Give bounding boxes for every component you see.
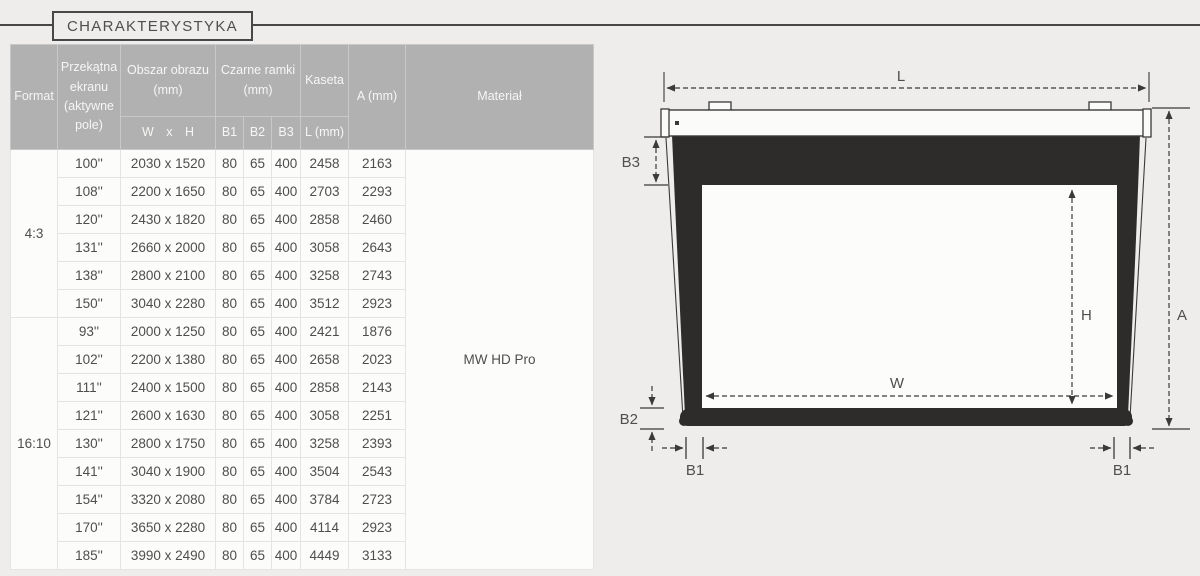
cell-b3: 400 [272,262,301,290]
cell-area: 3040 x 2280 [121,290,216,318]
cell-diagonal: 150'' [58,290,121,318]
cell-b1: 80 [216,402,244,430]
cell-b2: 65 [244,374,272,402]
header-format: Format [11,45,58,150]
cell-a: 2643 [349,234,406,262]
cell-diagonal: 93'' [58,318,121,346]
cell-area: 2030 x 1520 [121,150,216,178]
cell-a: 2723 [349,486,406,514]
header-b3: B3 [272,117,301,150]
cell-diagonal: 131'' [58,234,121,262]
cell-b2: 65 [244,458,272,486]
cell-b3: 400 [272,178,301,206]
format-cell: 4:3 [11,150,58,318]
cell-b1: 80 [216,346,244,374]
cell-b1: 80 [216,542,244,570]
casing-endcap-right [1143,109,1151,137]
page-title: CHARAKTERYSTYKA [67,18,238,35]
material-cell: MW HD Pro [406,150,594,570]
table-row: 4:3100''2030 x 1520806540024582163MW HD … [11,150,594,178]
cell-diagonal: 102'' [58,346,121,374]
cell-diagonal: 100'' [58,150,121,178]
cell-l: 3512 [301,290,349,318]
cell-b1: 80 [216,318,244,346]
header-black-frames: Czarne ramki (mm) [216,45,301,117]
cell-b1: 80 [216,290,244,318]
cell-a: 2923 [349,290,406,318]
cell-b3: 400 [272,206,301,234]
spec-table: Format Przekątna ekranu (aktywne pole) O… [10,44,594,570]
cell-l: 3504 [301,458,349,486]
cell-l: 3058 [301,234,349,262]
cell-l: 3784 [301,486,349,514]
cell-a: 2743 [349,262,406,290]
cell-diagonal: 108'' [58,178,121,206]
cell-l: 2458 [301,150,349,178]
cell-diagonal: 120'' [58,206,121,234]
header-b2: B2 [244,117,272,150]
cell-b1: 80 [216,206,244,234]
cell-area: 2000 x 1250 [121,318,216,346]
cell-l: 2858 [301,374,349,402]
cell-b3: 400 [272,318,301,346]
cell-b3: 400 [272,542,301,570]
cell-diagonal: 170'' [58,514,121,542]
cell-area: 3650 x 2280 [121,514,216,542]
dimension-diagram: L B3 H [600,0,1200,576]
cell-l: 4449 [301,542,349,570]
cell-area: 2200 x 1380 [121,346,216,374]
cell-diagonal: 130'' [58,430,121,458]
cell-b1: 80 [216,458,244,486]
cell-l: 2858 [301,206,349,234]
cell-a: 2143 [349,374,406,402]
cell-b2: 65 [244,290,272,318]
header-material: Materiał [406,45,594,150]
b2-label: B2 [620,411,638,428]
cell-b3: 400 [272,486,301,514]
casing-dot [675,121,679,125]
cell-area: 2200 x 1650 [121,178,216,206]
cell-a: 2393 [349,430,406,458]
b2-dimension: B2 [620,386,664,451]
header-a-mm: A (mm) [349,45,406,150]
cell-area: 2600 x 1630 [121,402,216,430]
cell-a: 3133 [349,542,406,570]
cell-diagonal: 121'' [58,402,121,430]
cell-b3: 400 [272,346,301,374]
cell-b2: 65 [244,318,272,346]
a-label: A [1177,307,1187,324]
cell-b1: 80 [216,178,244,206]
cell-b2: 65 [244,150,272,178]
cell-diagonal: 138'' [58,262,121,290]
cell-a: 2251 [349,402,406,430]
cell-l: 2421 [301,318,349,346]
cell-b2: 65 [244,430,272,458]
b1-dimension-right: B1 [1090,437,1154,479]
cell-b2: 65 [244,262,272,290]
cell-b1: 80 [216,262,244,290]
cell-l: 2703 [301,178,349,206]
header-diagonal: Przekątna ekranu (aktywne pole) [58,45,121,150]
cell-b1: 80 [216,374,244,402]
casing-endcap-left [661,109,669,137]
header-image-area: Obszar obrazu (mm) [121,45,216,117]
viewing-area [702,185,1117,408]
cell-b2: 65 [244,346,272,374]
spec-table-body: 4:3100''2030 x 1520806540024582163MW HD … [11,150,594,570]
cell-diagonal: 111'' [58,374,121,402]
w-label: W [890,375,905,392]
cell-b1: 80 [216,150,244,178]
cell-area: 3990 x 2490 [121,542,216,570]
casing [661,102,1151,137]
cell-area: 2660 x 2000 [121,234,216,262]
cell-area: 3040 x 1900 [121,458,216,486]
cell-area: 2800 x 1750 [121,430,216,458]
header-l-mm: L (mm) [301,117,349,150]
l-dimension: L [664,68,1149,102]
cell-b3: 400 [272,374,301,402]
header-b1: B1 [216,117,244,150]
cell-b2: 65 [244,206,272,234]
cell-a: 2923 [349,514,406,542]
cell-b1: 80 [216,486,244,514]
title-box: CHARAKTERYSTYKA [52,11,253,41]
cell-b3: 400 [272,430,301,458]
cell-l: 4114 [301,514,349,542]
cell-b2: 65 [244,402,272,430]
cell-l: 3258 [301,430,349,458]
cell-b1: 80 [216,514,244,542]
cell-area: 3320 x 2080 [121,486,216,514]
casing-body [668,110,1144,136]
header-kaseta: Kaseta [301,45,349,117]
cell-b2: 65 [244,234,272,262]
format-cell: 16:10 [11,318,58,570]
header-w-x-h: W x H [121,117,216,150]
b3-dimension: B3 [622,137,668,185]
weight-bar-end-left [679,416,689,426]
cell-b3: 400 [272,150,301,178]
cell-b2: 65 [244,486,272,514]
cell-l: 3258 [301,262,349,290]
cell-b3: 400 [272,458,301,486]
cell-diagonal: 154'' [58,486,121,514]
cell-b3: 400 [272,402,301,430]
weight-bar [680,409,1132,426]
cell-a: 1876 [349,318,406,346]
cell-a: 2293 [349,178,406,206]
b1-dimension-left: B1 [662,437,727,479]
cell-a: 2460 [349,206,406,234]
b1-right-label: B1 [1113,462,1131,479]
cell-b1: 80 [216,234,244,262]
cell-diagonal: 141'' [58,458,121,486]
b1-left-label: B1 [686,462,704,479]
cell-area: 2430 x 1820 [121,206,216,234]
cell-a: 2543 [349,458,406,486]
cell-area: 2400 x 1500 [121,374,216,402]
cell-area: 2800 x 2100 [121,262,216,290]
cell-b2: 65 [244,542,272,570]
weight-bar-end-right [1123,416,1133,426]
cell-b2: 65 [244,514,272,542]
cell-b1: 80 [216,430,244,458]
b3-label: B3 [622,154,640,171]
cell-a: 2163 [349,150,406,178]
cell-a: 2023 [349,346,406,374]
cell-b3: 400 [272,514,301,542]
page: CHARAKTERYSTYKA Format Przekątna ekranu … [0,0,1200,576]
a-dimension: A [1152,108,1190,429]
cell-l: 2658 [301,346,349,374]
cell-l: 3058 [301,402,349,430]
cell-diagonal: 185'' [58,542,121,570]
l-label: L [897,68,905,85]
cell-b3: 400 [272,234,301,262]
cell-b3: 400 [272,290,301,318]
h-label: H [1081,307,1092,324]
cell-b2: 65 [244,178,272,206]
